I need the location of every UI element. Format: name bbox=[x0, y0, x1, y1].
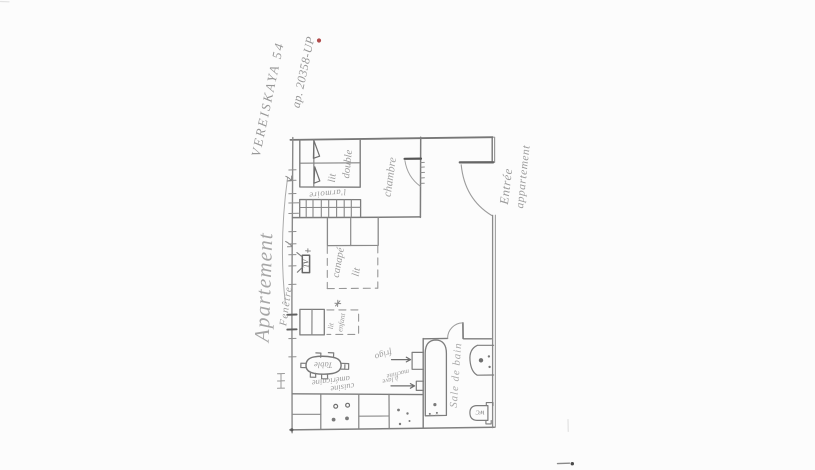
svg-text:chambre: chambre bbox=[382, 157, 399, 198]
svg-text:VEREISKAYA 54: VEREISKAYA 54 bbox=[248, 40, 287, 158]
svg-text:l'armoire: l'armoire bbox=[308, 187, 346, 201]
svg-text:Table: Table bbox=[314, 360, 333, 370]
svg-text:frigo: frigo bbox=[373, 347, 393, 362]
svg-text:lit: lit bbox=[351, 266, 364, 278]
svg-text:Entrée: Entrée bbox=[497, 167, 515, 206]
svg-text:double: double bbox=[341, 149, 355, 179]
svg-text:ap. 20358-UP: ap. 20358-UP bbox=[289, 35, 318, 109]
svg-text:Sale de bain: Sale de bain bbox=[448, 342, 465, 408]
svg-text:lit: lit bbox=[326, 322, 336, 330]
svg-text:Apartement: Apartement bbox=[250, 232, 278, 345]
svg-text:enfant: enfant bbox=[335, 312, 347, 333]
svg-text:TV: TV bbox=[302, 259, 310, 268]
svg-text:canapé: canapé bbox=[331, 245, 347, 278]
svg-text:lit: lit bbox=[327, 172, 339, 183]
svg-text:WC: WC bbox=[475, 409, 485, 415]
svg-text:appartement: appartement bbox=[514, 144, 533, 209]
